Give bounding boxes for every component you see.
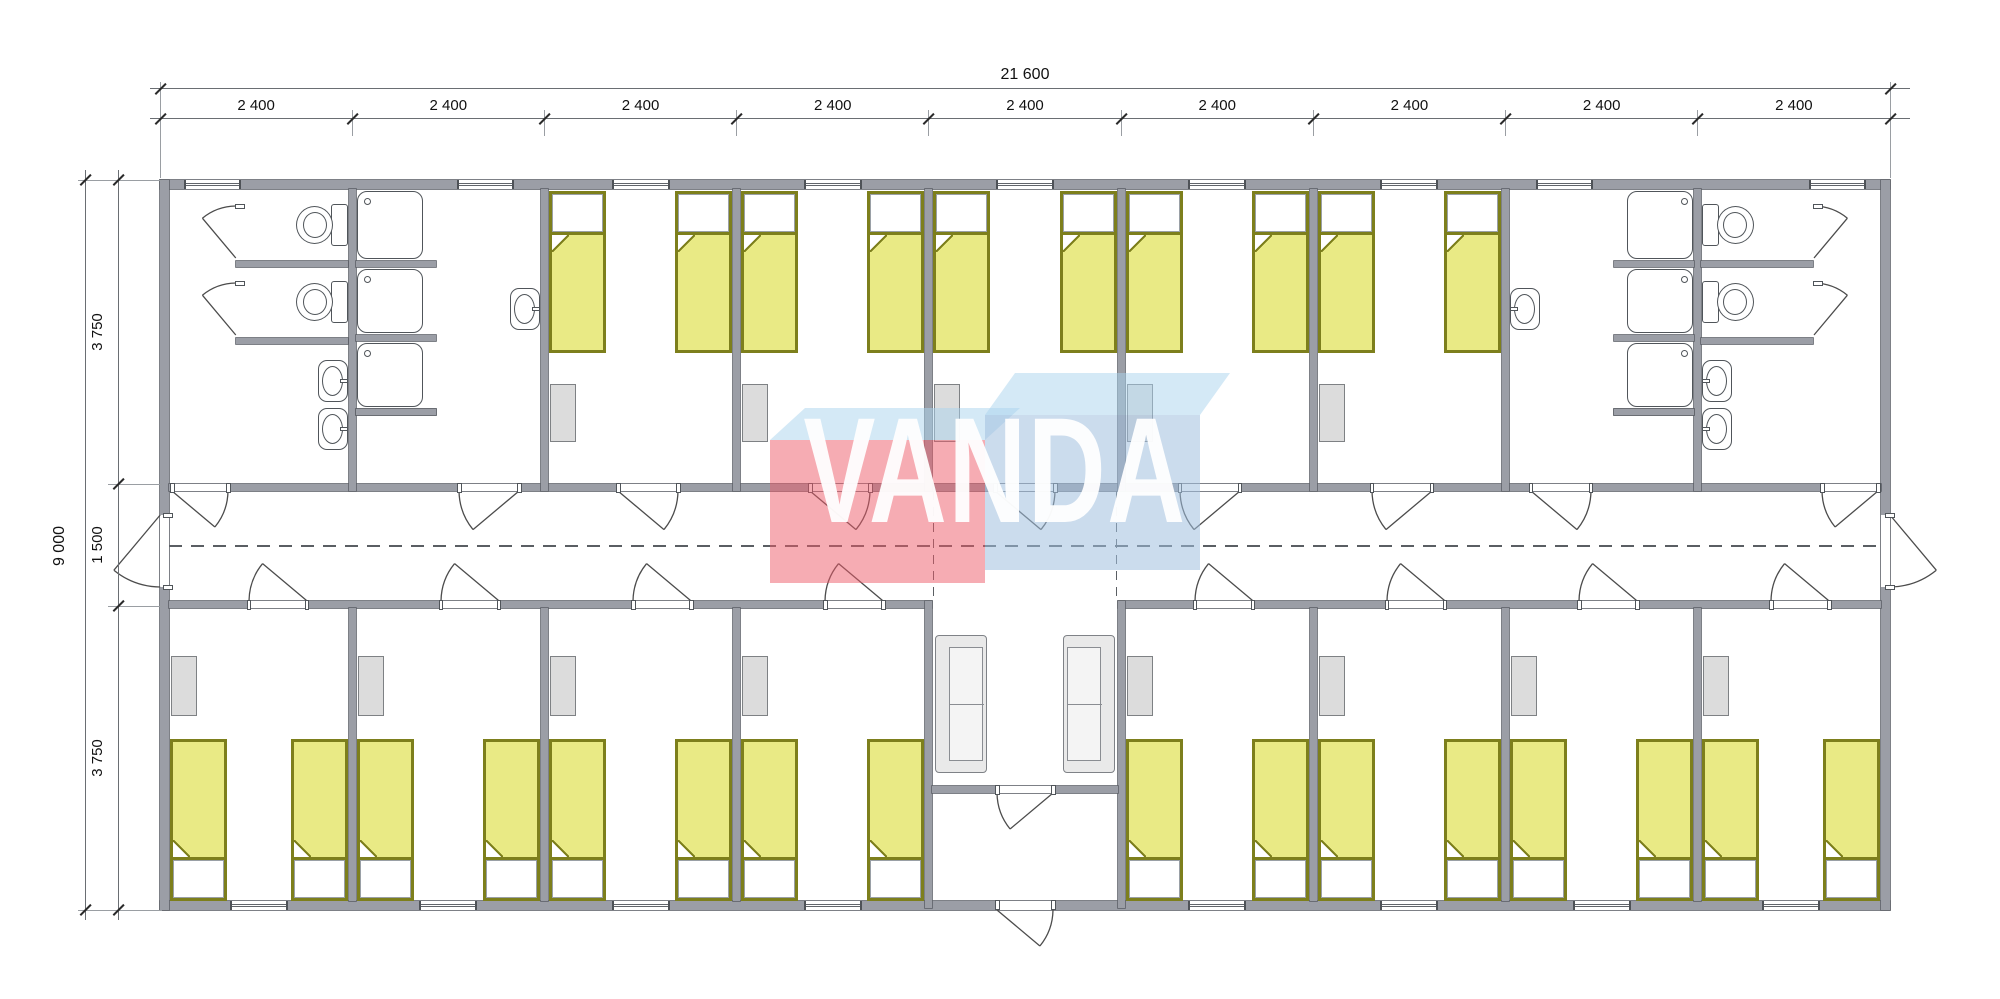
sink-tap <box>532 307 540 311</box>
bed-blanket <box>294 742 345 857</box>
sink <box>1702 408 1732 450</box>
window-frame-cap <box>668 901 670 910</box>
blanket-fold <box>678 235 695 252</box>
window-glazing-line <box>613 185 669 186</box>
window-glazing-line <box>231 906 287 907</box>
sofa-cushion-divider <box>950 704 984 705</box>
window-glazing-line <box>458 183 513 184</box>
window-frame-cap <box>1436 901 1438 910</box>
blanket-fold <box>552 840 569 857</box>
bed-pillow <box>1321 194 1372 232</box>
door-jamb <box>823 600 828 610</box>
window-frame-cap <box>1436 180 1438 189</box>
bed-pillow <box>1705 860 1756 898</box>
sink <box>1702 360 1732 402</box>
sink-tap <box>1510 307 1518 311</box>
door-opening <box>1180 484 1240 491</box>
window-glazing-line <box>1810 185 1865 186</box>
bed-pillow <box>552 860 603 898</box>
window-glazing-line <box>1537 185 1592 186</box>
bed-pillow <box>744 194 795 232</box>
bed <box>675 739 732 901</box>
door-swing <box>1890 515 1938 587</box>
bed <box>170 739 227 901</box>
wc-stall-partition <box>1701 261 1813 267</box>
window-frame-cap <box>457 180 459 189</box>
wardrobe <box>742 384 768 442</box>
partition-wall-bottom-row <box>541 608 548 901</box>
window-frame-cap <box>612 180 614 189</box>
window-glazing-line <box>458 185 513 186</box>
sofa-seat <box>949 647 983 761</box>
bed <box>741 191 798 353</box>
dimension-label-module: 2 400 <box>1177 97 1257 115</box>
partition-wall-bottom-row <box>349 608 356 901</box>
toilet-bowl-inner <box>303 289 327 315</box>
window-frame-cap <box>860 901 862 910</box>
door-jamb <box>1769 600 1774 610</box>
window-glazing-line <box>997 185 1053 186</box>
bed-pillow <box>360 860 411 898</box>
window-glazing-line <box>1537 183 1592 184</box>
logo-top-face-right <box>985 373 1230 415</box>
bed-pillow <box>1321 860 1372 898</box>
sink-tap <box>1702 379 1710 383</box>
blanket-fold <box>294 840 311 857</box>
dimension-line-bands <box>118 170 119 920</box>
door-swing <box>1771 562 1829 601</box>
window-glazing-line <box>1381 904 1437 905</box>
window-glazing-line <box>1381 183 1437 184</box>
extension-line <box>1121 110 1122 136</box>
toilet <box>1702 204 1755 246</box>
door-opening <box>1579 601 1637 608</box>
bed <box>1444 191 1501 353</box>
wc-stall-partition <box>236 338 348 344</box>
shower-drain <box>1681 198 1688 205</box>
shower-partition <box>1614 409 1694 415</box>
door-swing <box>249 562 307 601</box>
door-jamb <box>1178 483 1183 493</box>
door-jamb <box>305 600 310 610</box>
door-jamb <box>1820 483 1825 493</box>
door-jamb <box>439 600 444 610</box>
bed-blanket <box>1513 742 1564 857</box>
window-glazing-line <box>1189 183 1245 184</box>
dimension-overall-height: 9 000 <box>51 506 69 586</box>
vestibule-mouth-line <box>1116 491 1118 601</box>
dimension-label-module: 2 400 <box>408 97 488 115</box>
bed <box>1060 191 1117 353</box>
shower-cabin <box>357 343 423 407</box>
extension-line <box>1313 110 1314 136</box>
shower-cabin <box>357 269 423 333</box>
door-swing <box>1579 562 1637 601</box>
bed-pillow <box>870 194 921 232</box>
window-frame-cap <box>1818 901 1820 910</box>
bed-blanket <box>552 235 603 350</box>
bed <box>867 739 924 901</box>
watermark-text: VANDA <box>765 390 1226 560</box>
sink-tap <box>1702 427 1710 431</box>
window-frame-cap <box>996 180 998 189</box>
door-jamb <box>1813 204 1823 209</box>
shower-partition <box>356 409 436 415</box>
door-swing <box>441 562 499 601</box>
window-glazing-line <box>1574 906 1630 907</box>
door-opening <box>249 601 307 608</box>
toilet <box>295 281 348 323</box>
bed <box>1252 191 1309 353</box>
door-jamb <box>1051 785 1056 795</box>
extension-line <box>78 910 162 911</box>
toilet-tank <box>331 204 348 246</box>
window-frame-cap <box>1188 180 1190 189</box>
sink-tap <box>340 379 348 383</box>
bed-pillow <box>552 194 603 232</box>
sink <box>1510 288 1540 330</box>
dimension-label-module: 2 400 <box>793 97 873 115</box>
sofa <box>1063 635 1115 773</box>
bed-blanket <box>1255 742 1306 857</box>
window-glazing-line <box>185 183 240 184</box>
blanket-fold <box>870 235 887 252</box>
window-frame-cap <box>804 180 806 189</box>
bed-blanket <box>1129 235 1180 350</box>
door-swing <box>633 562 691 601</box>
bed <box>291 739 348 901</box>
door-jamb <box>1589 483 1594 493</box>
door-jamb <box>993 483 998 493</box>
extension-line <box>736 110 737 136</box>
door-opening <box>1881 515 1890 587</box>
window-frame-cap <box>1762 901 1764 910</box>
window-frame-cap <box>1864 180 1866 189</box>
door-opening <box>1195 601 1253 608</box>
window-glazing-line <box>420 906 476 907</box>
window-glazing-line <box>805 185 861 186</box>
shower-drain <box>1681 350 1688 357</box>
bed <box>549 191 606 353</box>
bed-pillow <box>1255 194 1306 232</box>
window-glazing-line <box>1189 904 1245 905</box>
window-glazing-line <box>1574 904 1630 905</box>
door-jamb <box>881 600 886 610</box>
bed-blanket <box>1705 742 1756 857</box>
window-glazing-line <box>1763 904 1819 905</box>
partition-wall-top-row <box>733 189 740 491</box>
toilet-bowl-inner <box>303 212 327 238</box>
wardrobe <box>1319 656 1345 716</box>
partition-wall-bottom-row <box>1694 608 1701 901</box>
bed <box>1252 739 1309 901</box>
door-swing <box>825 562 883 601</box>
bed-pillow <box>1447 194 1498 232</box>
shower-cabin <box>1627 269 1693 333</box>
blanket-fold <box>1129 840 1146 857</box>
door-jamb <box>689 600 694 610</box>
door-swing <box>1195 562 1253 601</box>
bed-blanket <box>744 235 795 350</box>
sink <box>318 408 348 450</box>
shower-cabin <box>1627 191 1693 259</box>
door-jamb <box>1443 600 1448 610</box>
blanket-fold <box>173 840 190 857</box>
door-jamb <box>1876 483 1881 493</box>
window-frame-cap <box>1188 901 1190 910</box>
window-frame-cap <box>184 180 186 189</box>
watermark-logo: VANDA <box>755 368 1235 583</box>
floor-plan-canvas: VANDA 21 600 9 000 2 4002 4002 4002 4002… <box>0 0 2000 999</box>
door-opening <box>160 515 169 587</box>
shower-drain <box>1681 276 1688 283</box>
blanket-fold <box>1129 235 1146 252</box>
shower-cabin <box>1627 343 1693 407</box>
door-opening <box>825 601 883 608</box>
door-jamb <box>1885 585 1895 590</box>
sink <box>510 288 540 330</box>
extension-line <box>928 110 929 136</box>
dimension-label-band: 3 750 <box>89 292 107 372</box>
door-swing <box>172 491 228 529</box>
door-jamb <box>808 483 813 493</box>
bed <box>1702 739 1759 901</box>
door-opening <box>997 901 1053 910</box>
window-frame-cap <box>239 180 241 189</box>
partition-wall-top-row <box>349 189 356 491</box>
bed <box>741 739 798 901</box>
door-opening <box>633 601 691 608</box>
door-jamb <box>163 585 173 590</box>
window-frame-cap <box>512 180 514 189</box>
bed-blanket <box>486 742 537 857</box>
extension-line <box>1697 110 1698 136</box>
door-swing <box>995 491 1055 531</box>
dimension-label-module: 2 400 <box>601 97 681 115</box>
bed-blanket <box>744 742 795 857</box>
shower-partition <box>1614 335 1694 341</box>
door-opening <box>172 484 228 491</box>
bed-pillow <box>486 860 537 898</box>
window-frame-cap <box>1809 180 1811 189</box>
sink-tap <box>340 427 348 431</box>
bed <box>357 739 414 901</box>
bed-pillow <box>678 860 729 898</box>
bed-blanket <box>1063 235 1114 350</box>
door-jamb <box>247 600 252 610</box>
door-jamb <box>170 483 175 493</box>
bed <box>1823 739 1880 901</box>
bed <box>1318 739 1375 901</box>
bed-pillow <box>1129 194 1180 232</box>
door-jamb <box>1193 600 1198 610</box>
door-jamb <box>631 600 636 610</box>
bed-blanket <box>870 742 921 857</box>
wardrobe <box>358 656 384 716</box>
partition-wall-top-row <box>1502 189 1509 491</box>
shower-drain <box>364 276 371 283</box>
bed-blanket <box>1129 742 1180 857</box>
door-opening <box>1822 484 1878 491</box>
door-jamb <box>226 483 231 493</box>
door-swing <box>201 283 236 335</box>
door-swing <box>1372 491 1432 531</box>
dimension-label-band: 1 500 <box>89 505 107 585</box>
sofa-cushion-divider <box>1068 704 1102 705</box>
bed-blanket <box>1447 742 1498 857</box>
bed-pillow <box>1639 860 1690 898</box>
bed-blanket <box>1321 742 1372 857</box>
bed-blanket <box>678 742 729 857</box>
window-frame-cap <box>230 901 232 910</box>
door-jamb <box>995 900 1000 910</box>
dimension-line-modules <box>150 118 1910 119</box>
door-opening <box>995 484 1055 491</box>
blanket-fold <box>744 235 761 252</box>
door-jamb <box>517 483 522 493</box>
window-frame-cap <box>668 180 670 189</box>
partition-wall-top-row <box>541 189 548 491</box>
door-jamb <box>995 785 1000 795</box>
door-swing <box>1531 491 1591 531</box>
bed-pillow <box>936 194 987 232</box>
window-frame-cap <box>475 901 477 910</box>
dimension-label-module: 2 400 <box>985 97 1065 115</box>
wardrobe <box>1319 384 1345 442</box>
blanket-fold <box>936 235 953 252</box>
wardrobe <box>1511 656 1537 716</box>
blanket-fold <box>1447 840 1464 857</box>
blanket-fold <box>744 840 761 857</box>
bed <box>483 739 540 901</box>
extension-line <box>160 110 161 136</box>
bed-blanket <box>870 235 921 350</box>
blanket-fold <box>1639 840 1656 857</box>
extension-line <box>1890 110 1891 136</box>
door-jamb <box>1370 483 1375 493</box>
blanket-fold <box>1513 840 1530 857</box>
window-glazing-line <box>1189 185 1245 186</box>
wardrobe <box>1703 656 1729 716</box>
door-jamb <box>1577 600 1582 610</box>
door-jamb <box>868 483 873 493</box>
window-frame-cap <box>804 901 806 910</box>
door-opening <box>1372 484 1432 491</box>
shower-cabin <box>357 191 423 259</box>
door-swing <box>1180 491 1240 531</box>
window-glazing-line <box>1189 906 1245 907</box>
toilet <box>295 204 348 246</box>
bed-pillow <box>1255 860 1306 898</box>
dimension-label-module: 2 400 <box>1754 97 1834 115</box>
bed <box>675 191 732 353</box>
bed-blanket <box>173 742 224 857</box>
bed-pillow <box>294 860 345 898</box>
window-frame-cap <box>1573 901 1575 910</box>
bed-blanket <box>1255 235 1306 350</box>
window-glazing-line <box>997 183 1053 184</box>
wardrobe <box>550 656 576 716</box>
window-glazing-line <box>613 906 669 907</box>
vestibule-side-wall <box>1118 601 1125 908</box>
window-frame-cap <box>419 901 421 910</box>
door-jamb <box>1827 600 1832 610</box>
blanket-fold <box>1255 840 1272 857</box>
bed-pillow <box>1447 860 1498 898</box>
partition-wall-top-row <box>1694 189 1701 491</box>
window-glazing-line <box>613 183 669 184</box>
window-glazing-line <box>613 904 669 905</box>
door-jamb <box>616 483 621 493</box>
door-swing <box>1822 491 1878 529</box>
dimension-line-overall-height <box>85 170 86 920</box>
dimension-line-overall-width <box>150 88 1910 89</box>
blanket-fold <box>678 840 695 857</box>
wardrobe <box>550 384 576 442</box>
partition-wall-bottom-row <box>1310 608 1317 901</box>
window-frame-cap <box>1536 180 1538 189</box>
window-glazing-line <box>1381 185 1437 186</box>
door-swing <box>810 491 870 531</box>
wc-stall-partition <box>1701 338 1813 344</box>
door-jamb <box>1635 600 1640 610</box>
door-swing <box>618 491 678 531</box>
window-frame-cap <box>1591 180 1593 189</box>
dimension-label-module: 2 400 <box>216 97 296 115</box>
dimension-label-band: 3 750 <box>89 718 107 798</box>
partition-wall-top-row <box>925 189 932 491</box>
blanket-fold <box>1705 840 1722 857</box>
door-swing <box>1814 283 1849 335</box>
door-jamb <box>1251 600 1256 610</box>
blanket-fold <box>1321 235 1338 252</box>
partition-wall-top-row <box>1118 189 1125 491</box>
door-jamb <box>235 204 245 209</box>
bed-blanket <box>360 742 411 857</box>
blanket-fold <box>1063 235 1080 252</box>
door-opening <box>1531 484 1591 491</box>
toilet <box>1702 281 1755 323</box>
vestibule-side-wall <box>925 601 932 908</box>
wardrobe <box>742 656 768 716</box>
door-opening <box>1771 601 1829 608</box>
wardrobe <box>934 384 960 442</box>
blanket-fold <box>552 235 569 252</box>
window-glazing-line <box>1381 906 1437 907</box>
logo-top-face-left <box>770 408 1020 440</box>
corridor-center-line <box>169 545 1881 547</box>
bed-pillow <box>173 860 224 898</box>
door-opening <box>459 484 519 491</box>
bed-blanket <box>552 742 603 857</box>
extension-line <box>352 110 353 136</box>
door-jamb <box>1813 281 1823 286</box>
door-swing <box>997 910 1053 948</box>
extension-line <box>1505 110 1506 136</box>
window-glazing-line <box>185 185 240 186</box>
window-frame-cap <box>1629 901 1631 910</box>
wc-stall-partition <box>236 261 348 267</box>
window-glazing-line <box>1763 906 1819 907</box>
blanket-fold <box>1447 235 1464 252</box>
bed <box>1318 191 1375 353</box>
window-glazing-line <box>420 904 476 905</box>
window-frame-cap <box>1052 180 1054 189</box>
door-jamb <box>1885 513 1895 518</box>
bed-blanket <box>678 235 729 350</box>
blanket-fold <box>1826 840 1843 857</box>
shower-partition <box>356 335 436 341</box>
